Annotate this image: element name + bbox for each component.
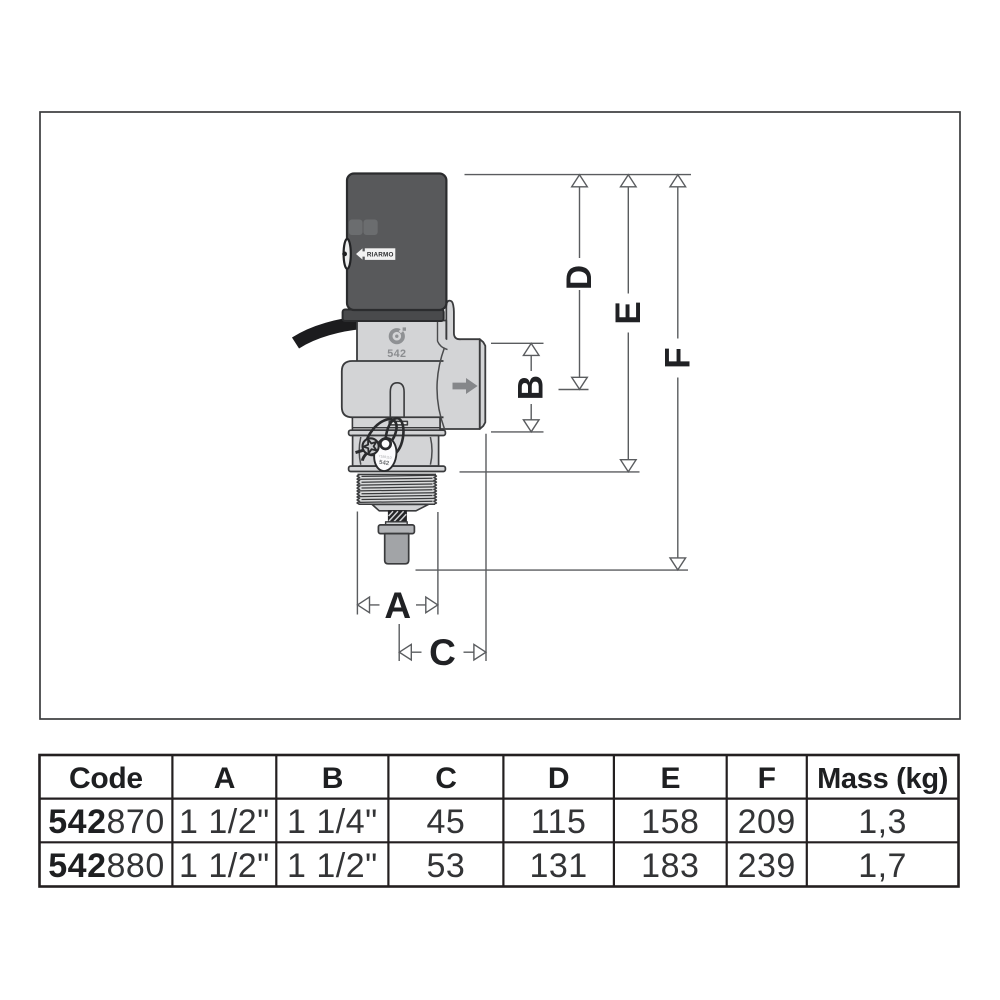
svg-text:115: 115: [531, 803, 587, 841]
svg-text:E: E: [660, 762, 680, 795]
svg-text:D: D: [560, 265, 599, 290]
svg-text:E: E: [609, 301, 648, 324]
svg-text:45: 45: [426, 803, 465, 841]
svg-text:D: D: [548, 762, 569, 795]
svg-text:183: 183: [641, 847, 699, 885]
svg-text:542870: 542870: [48, 803, 164, 841]
svg-text:131: 131: [529, 847, 587, 885]
svg-text:239: 239: [738, 847, 796, 885]
svg-text:B: B: [512, 375, 551, 400]
svg-text:542880: 542880: [48, 847, 164, 885]
svg-text:1 1/2": 1 1/2": [287, 847, 378, 885]
svg-text:F: F: [658, 347, 697, 368]
svg-text:Mass (kg): Mass (kg): [817, 763, 948, 795]
svg-text:1,3: 1,3: [858, 803, 907, 841]
svg-text:A: A: [384, 585, 411, 626]
svg-text:1 1/4": 1 1/4": [287, 803, 378, 841]
svg-text:Code: Code: [69, 762, 143, 795]
svg-text:C: C: [429, 632, 456, 673]
svg-text:1 1/2": 1 1/2": [179, 803, 270, 841]
svg-text:RIARMO: RIARMO: [367, 252, 394, 259]
svg-text:1 1/2": 1 1/2": [179, 847, 270, 885]
svg-text:209: 209: [738, 803, 796, 841]
svg-text:C: C: [435, 762, 456, 795]
svg-text:A: A: [214, 762, 235, 795]
svg-text:53: 53: [426, 847, 465, 885]
svg-text:1,7: 1,7: [858, 847, 907, 885]
svg-text:F: F: [758, 762, 776, 795]
svg-text:158: 158: [641, 803, 699, 841]
svg-text:B: B: [322, 762, 343, 795]
svg-text:542: 542: [387, 348, 406, 360]
